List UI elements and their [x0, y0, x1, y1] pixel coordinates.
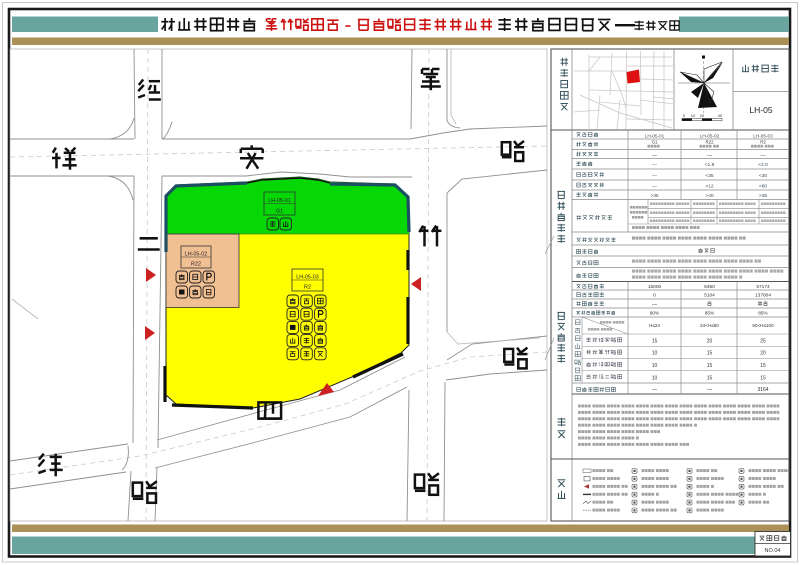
- svg-text:NO.04: NO.04: [765, 548, 781, 554]
- svg-text:LH-05-02: LH-05-02: [185, 252, 207, 258]
- svg-text:—: —: [760, 153, 766, 159]
- svg-text:<35: <35: [705, 173, 714, 179]
- svg-text:<2.0: <2.0: [758, 162, 768, 168]
- svg-text:>35: >35: [650, 193, 659, 199]
- svg-text:15: 15: [707, 375, 713, 381]
- svg-text:—: —: [707, 153, 713, 159]
- svg-text:10: 10: [652, 351, 658, 357]
- svg-text:LH-05-03: LH-05-03: [753, 133, 773, 138]
- svg-text:<12: <12: [705, 184, 714, 190]
- svg-text:<30: <30: [759, 173, 768, 179]
- svg-text:—: —: [652, 185, 657, 190]
- svg-text:LH-05-02: LH-05-02: [700, 133, 720, 138]
- svg-text:25: 25: [760, 338, 766, 344]
- svg-text:—: —: [652, 174, 657, 179]
- svg-text:50<H≤100: 50<H≤100: [752, 323, 774, 328]
- svg-text:LH-05-01: LH-05-01: [645, 133, 665, 138]
- svg-text:R22: R22: [191, 262, 201, 268]
- svg-text:15: 15: [760, 375, 766, 381]
- svg-text:G1: G1: [276, 209, 283, 215]
- svg-text:15: 15: [760, 363, 766, 369]
- svg-text:5104: 5104: [704, 293, 715, 299]
- svg-text:0: 0: [653, 293, 656, 299]
- svg-text:—: —: [652, 153, 658, 159]
- svg-text:LH-05: LH-05: [749, 105, 772, 115]
- svg-text:—: —: [707, 387, 712, 393]
- svg-text:85%: 85%: [705, 311, 715, 317]
- svg-text:90%: 90%: [650, 311, 660, 317]
- svg-text:10: 10: [652, 375, 658, 381]
- svg-text:20: 20: [760, 351, 766, 357]
- svg-text:15: 15: [707, 363, 713, 369]
- svg-text:H≤24: H≤24: [649, 323, 660, 328]
- svg-text:24<H≤50: 24<H≤50: [700, 323, 719, 328]
- svg-text:<80: <80: [759, 184, 768, 190]
- svg-text:20: 20: [700, 113, 705, 118]
- svg-text:<1.8: <1.8: [705, 162, 715, 168]
- svg-text:10: 10: [691, 113, 696, 118]
- svg-text:R2: R2: [304, 285, 311, 291]
- svg-text:6460: 6460: [704, 284, 715, 290]
- svg-text:LH-05-01: LH-05-01: [268, 198, 290, 204]
- svg-text:40: 40: [718, 113, 723, 118]
- svg-text:137804: 137804: [755, 293, 771, 299]
- svg-text:15: 15: [707, 351, 713, 357]
- svg-text:>40: >40: [705, 193, 714, 199]
- svg-text:85%: 85%: [758, 311, 768, 317]
- svg-text:57174: 57174: [756, 284, 770, 290]
- svg-text:>35: >35: [759, 193, 768, 199]
- svg-text:20: 20: [707, 338, 713, 344]
- svg-text:R2: R2: [760, 140, 766, 145]
- svg-text:15: 15: [652, 338, 658, 344]
- svg-text:G1: G1: [652, 140, 658, 145]
- svg-text:—: —: [652, 387, 657, 393]
- svg-text:R22: R22: [705, 140, 714, 145]
- svg-text:15000: 15000: [648, 284, 662, 290]
- svg-text:3164: 3164: [757, 387, 768, 393]
- svg-text:10: 10: [652, 363, 658, 369]
- svg-text:LH-05-03: LH-05-03: [296, 275, 318, 281]
- svg-text:—: —: [652, 302, 657, 308]
- svg-text:—: —: [652, 163, 657, 168]
